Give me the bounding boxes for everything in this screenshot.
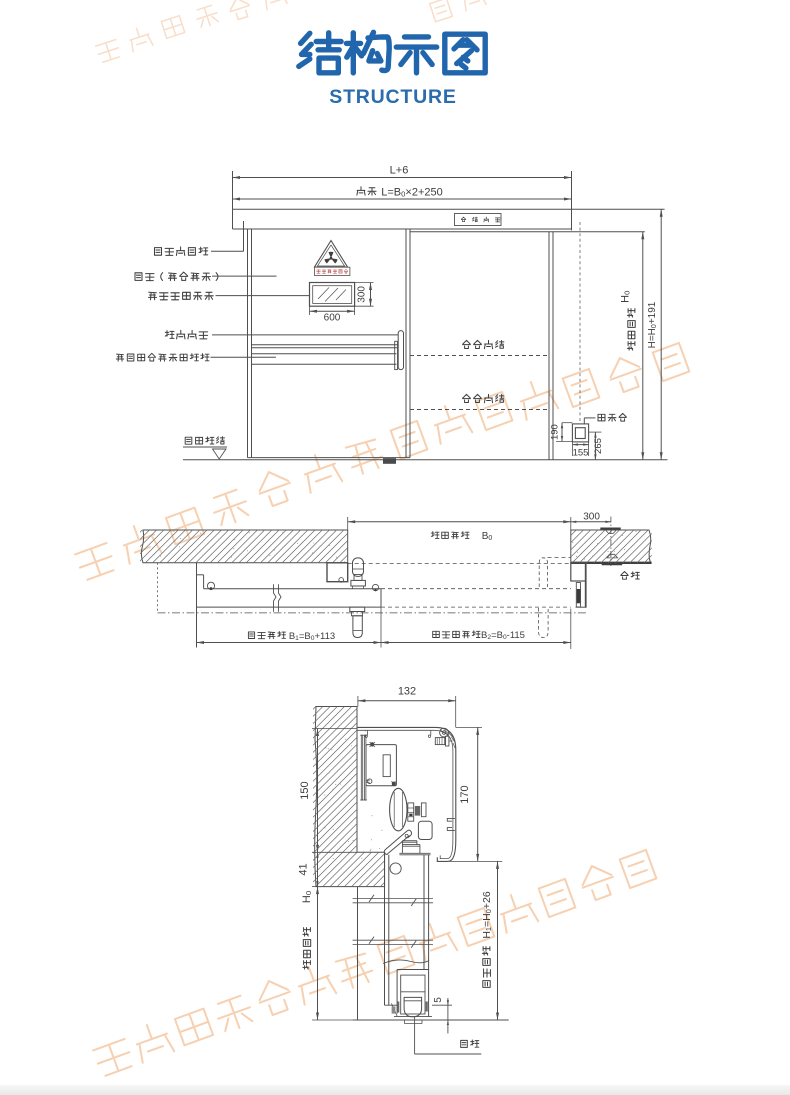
- svg-text:132: 132: [398, 686, 416, 698]
- svg-text:H=H0+191: H=H0+191: [647, 301, 658, 348]
- svg-text:155: 155: [573, 448, 589, 459]
- svg-text:41: 41: [298, 863, 310, 875]
- svg-text:L+6: L+6: [390, 165, 409, 177]
- svg-text:L=B0×2+250: L=B0×2+250: [381, 187, 443, 199]
- svg-text:265: 265: [593, 438, 604, 454]
- svg-text:190: 190: [550, 424, 561, 440]
- svg-text:600: 600: [324, 313, 341, 324]
- svg-text:150: 150: [299, 781, 311, 799]
- svg-text:H1=H0+26: H1=H0+26: [481, 891, 493, 938]
- svg-text:300: 300: [583, 511, 600, 522]
- svg-text:170: 170: [459, 785, 471, 803]
- svg-text:STRUCTURE: STRUCTURE: [329, 86, 456, 108]
- svg-text:300: 300: [357, 286, 368, 303]
- svg-text:5: 5: [433, 997, 444, 1003]
